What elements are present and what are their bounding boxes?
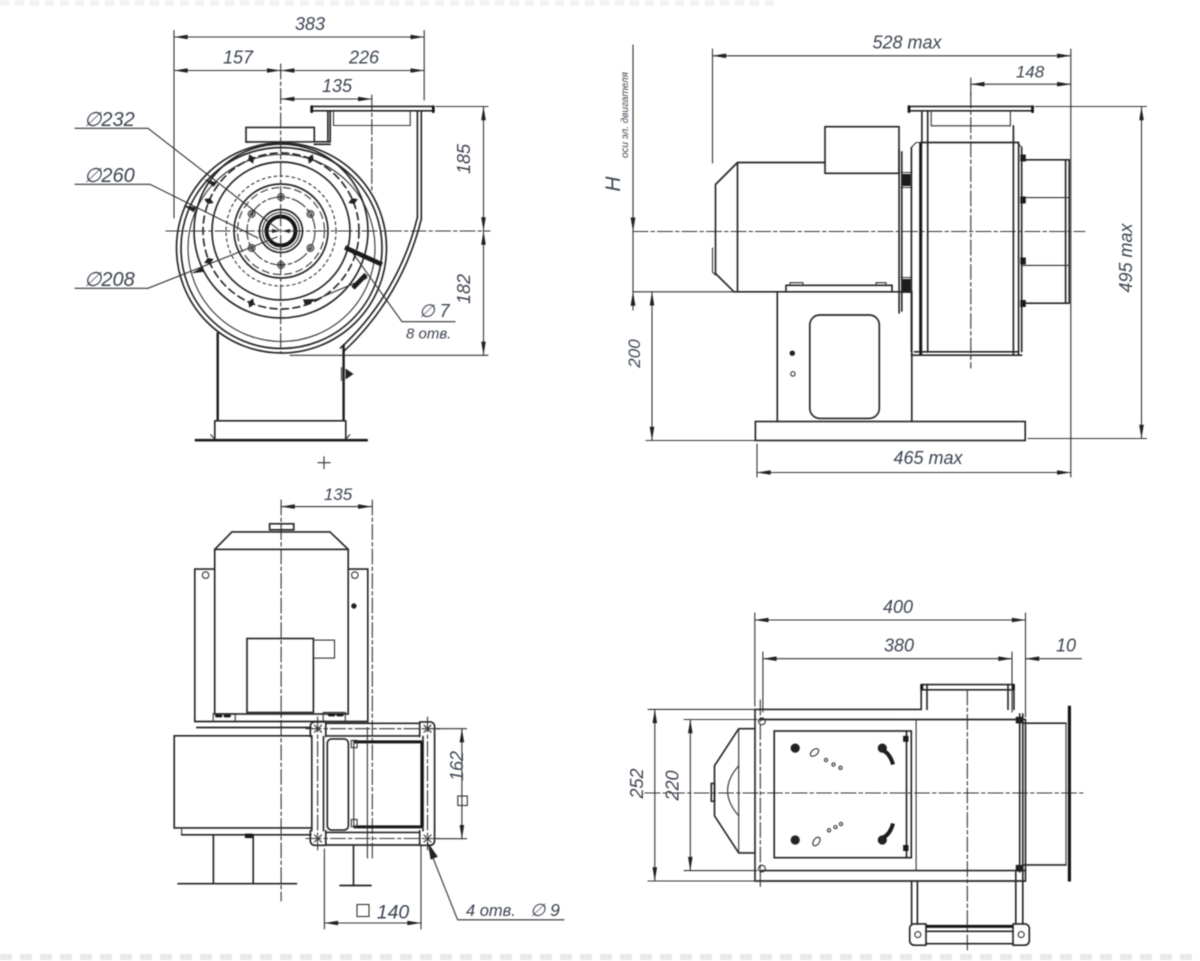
svg-text:200: 200 (625, 339, 644, 369)
svg-text:4 отв.: 4 отв. (466, 902, 516, 920)
svg-text:10: 10 (1056, 636, 1076, 656)
svg-text:8 отв.: 8 отв. (406, 326, 451, 343)
svg-text:оси эл. двигателя: оси эл. двигателя (620, 71, 631, 158)
svg-text:220: 220 (663, 770, 683, 801)
svg-text:380: 380 (884, 636, 914, 656)
svg-text:252: 252 (627, 768, 647, 799)
svg-text:135: 135 (322, 76, 353, 96)
svg-text:157: 157 (223, 48, 254, 68)
svg-text:∅ 7: ∅ 7 (419, 301, 451, 321)
svg-text:148: 148 (1016, 63, 1045, 82)
svg-text:182: 182 (454, 274, 474, 304)
svg-text:162: 162 (447, 751, 467, 781)
svg-text:H: H (602, 176, 625, 192)
svg-text:383: 383 (295, 14, 325, 34)
svg-text:226: 226 (348, 48, 380, 68)
svg-text:465 max: 465 max (893, 448, 963, 468)
svg-text:∅208: ∅208 (84, 269, 135, 291)
svg-text:400: 400 (883, 597, 913, 617)
svg-text:528 max: 528 max (872, 33, 942, 53)
svg-text:140: 140 (377, 902, 410, 924)
svg-text:∅232: ∅232 (84, 109, 135, 131)
svg-text:495 max: 495 max (1116, 222, 1136, 292)
svg-text:185: 185 (454, 143, 474, 174)
svg-text:135: 135 (324, 485, 353, 504)
svg-text:∅260: ∅260 (84, 165, 135, 187)
svg-text:∅ 9: ∅ 9 (530, 900, 560, 920)
